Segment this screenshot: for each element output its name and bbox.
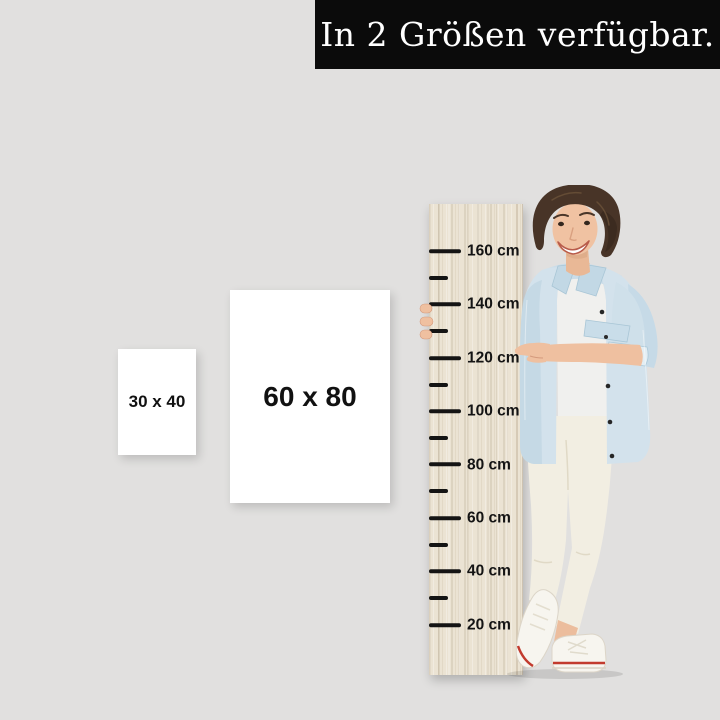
- size-card-30x40: 30 x 40: [118, 349, 196, 455]
- product-image: In 2 Größen verfügbar. 30 x 40 60 x 80 1…: [0, 0, 720, 720]
- size-label-large: 60 x 80: [263, 381, 356, 413]
- fingertips-on-board: [420, 304, 433, 339]
- banner: In 2 Größen verfügbar.: [315, 0, 720, 69]
- size-label-small: 30 x 40: [129, 392, 186, 412]
- sneaker-front: [552, 634, 606, 672]
- woman-photo: [410, 185, 670, 685]
- banner-text: In 2 Größen verfügbar.: [320, 15, 715, 54]
- size-card-60x80: 60 x 80: [230, 290, 390, 503]
